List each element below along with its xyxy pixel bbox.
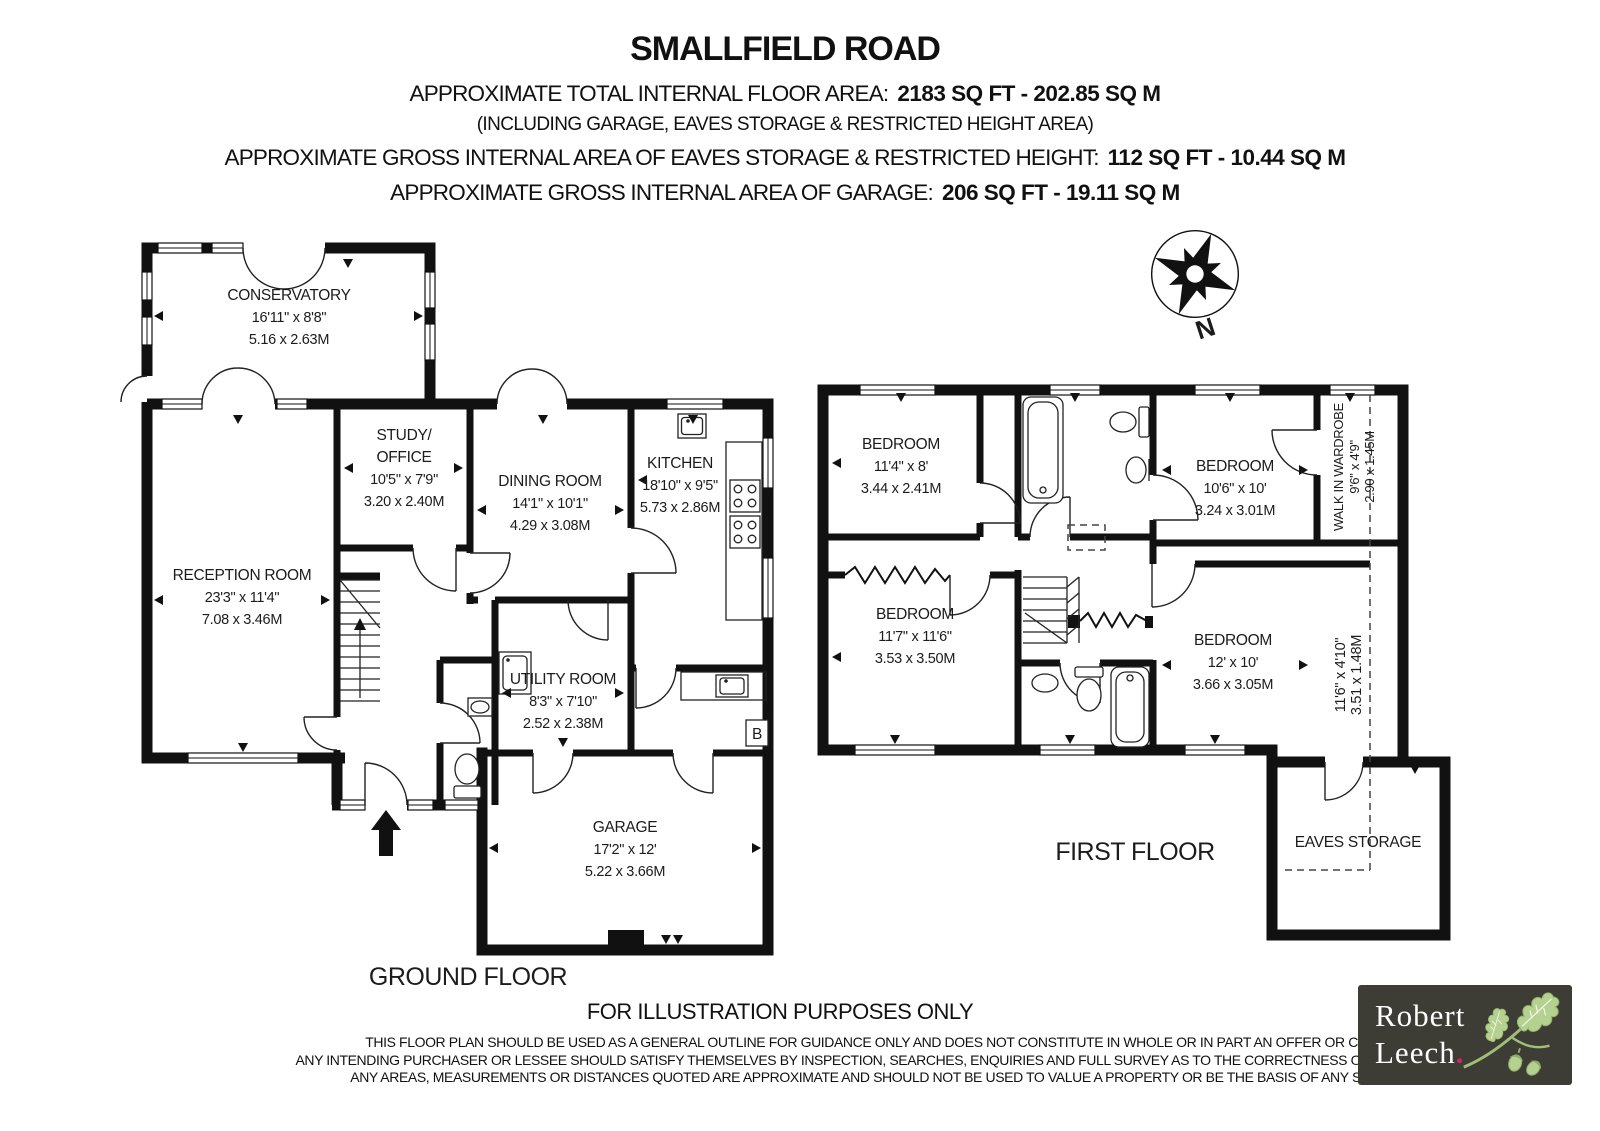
room-imperial: 23'3" x 11'4" bbox=[205, 590, 280, 606]
window bbox=[425, 324, 435, 360]
garage-area-line: APPROXIMATE GROSS INTERNAL AREA OF GARAG… bbox=[0, 180, 1570, 206]
room-name: GARAGE bbox=[593, 819, 658, 836]
window bbox=[445, 800, 478, 810]
room-imperial: 14'1" x 10'1" bbox=[512, 496, 588, 512]
staircase-down bbox=[1023, 577, 1079, 643]
toilet-icon bbox=[1075, 667, 1103, 711]
eaves-area-value: 112 SQ FT - 10.44 SQ M bbox=[1108, 145, 1346, 170]
room-name: KITCHEN bbox=[647, 455, 713, 472]
ground-floor-label: GROUND FLOOR bbox=[369, 963, 567, 991]
room-metric: 7.08 x 3.46M bbox=[202, 612, 282, 628]
room-imperial: 10'6" x 10' bbox=[1203, 481, 1267, 497]
window bbox=[340, 800, 365, 810]
window bbox=[763, 438, 773, 488]
room-metric: 2.52 x 2.38M bbox=[523, 716, 603, 732]
ground-windows bbox=[142, 243, 773, 810]
ground-door-arcs bbox=[121, 248, 713, 805]
room-label-kitchen: KITCHEN 18'10" x 9'5" 5.73 x 2.86M bbox=[640, 455, 720, 516]
bath-icon bbox=[1023, 397, 1063, 503]
room-name: CONSERVATORY bbox=[227, 287, 350, 304]
window bbox=[763, 558, 773, 618]
room-imperial: 12' x 10' bbox=[1208, 655, 1259, 671]
room-imperial: 16'11" x 8'8" bbox=[252, 310, 327, 326]
window bbox=[425, 272, 435, 308]
room-imperial: 11'6" x 4'10" bbox=[1333, 638, 1349, 713]
agency-logo: Robert Leech. bbox=[1358, 985, 1572, 1085]
room-metric: 3.53 x 3.50M bbox=[875, 651, 955, 667]
north-label: N bbox=[1192, 311, 1219, 345]
room-imperial: 9'6" x 4'9" bbox=[1347, 440, 1362, 494]
floorplan-page: { "header": { "title": "SMALLFIELD ROAD"… bbox=[0, 0, 1600, 1131]
entrance-arrow-icon bbox=[371, 810, 401, 856]
room-imperial: 17'2" x 12' bbox=[593, 842, 657, 858]
room-label-bedroom-bottom-right: BEDROOM 12' x 10' 3.66 x 3.05M bbox=[1193, 632, 1273, 693]
first-floor-plan: BEDROOM 11'4" x 8' 3.44 x 2.41M BEDROOM … bbox=[805, 375, 1465, 975]
room-label-dining: DINING ROOM 14'1" x 10'1" 4.29 x 3.08M bbox=[498, 473, 601, 534]
agency-name-line2: Leech bbox=[1375, 1035, 1456, 1070]
room-name: BEDROOM bbox=[1196, 458, 1274, 475]
room-metric: 3.66 x 3.05M bbox=[1193, 677, 1273, 693]
room-metric: 3.44 x 2.41M bbox=[861, 481, 941, 497]
basin-icon bbox=[468, 698, 492, 716]
staircase-up bbox=[340, 580, 380, 701]
window bbox=[162, 399, 202, 409]
wardrobe-zigzag bbox=[845, 567, 950, 583]
title-block: SMALLFIELD ROAD APPROXIMATE TOTAL INTERN… bbox=[0, 30, 1570, 206]
boiler-badge: B bbox=[746, 720, 768, 746]
room-metric: 2.90 x 1.45M bbox=[1362, 431, 1377, 503]
illustration-note: FOR ILLUSTRATION PURPOSES ONLY bbox=[0, 999, 1560, 1025]
room-label-restricted-height: 11'6" x 4'10" 3.51 x 1.48M bbox=[1333, 635, 1365, 715]
room-label-bedroom-top-right: BEDROOM 10'6" x 10' 3.24 x 3.01M bbox=[1195, 458, 1275, 519]
first-floor-label: FIRST FLOOR bbox=[1055, 838, 1214, 866]
room-name: RECEPTION ROOM bbox=[173, 567, 312, 584]
window bbox=[277, 399, 307, 409]
oak-leaves-icon bbox=[1456, 987, 1568, 1081]
room-metric: 5.73 x 2.86M bbox=[640, 500, 720, 516]
room-name: UTILITY ROOM bbox=[510, 671, 616, 688]
total-area-value: 2183 SQ FT - 202.85 SQ M bbox=[897, 81, 1160, 106]
room-imperial: 11'7" x 11'6" bbox=[878, 629, 952, 645]
total-area-line: APPROXIMATE TOTAL INTERNAL FLOOR AREA:21… bbox=[0, 81, 1570, 107]
window bbox=[1040, 745, 1095, 755]
window bbox=[142, 317, 152, 345]
garage-area-value: 206 SQ FT - 19.11 SQ M bbox=[942, 180, 1180, 205]
toilet-icon bbox=[1110, 407, 1149, 437]
room-imperial: 18'10" x 9'5" bbox=[642, 478, 718, 494]
room-imperial: 11'4" x 8' bbox=[874, 459, 929, 475]
room-label-utility: UTILITY ROOM 8'3" x 7'10" 2.52 x 2.38M bbox=[510, 671, 616, 732]
boiler-label: B bbox=[752, 726, 762, 743]
room-metric: 3.51 x 1.48M bbox=[1349, 635, 1365, 715]
room-label-eaves-storage: EAVES STORAGE bbox=[1295, 834, 1421, 851]
room-label-reception: RECEPTION ROOM 23'3" x 11'4" 7.08 x 3.46… bbox=[173, 567, 312, 628]
lobby-counter bbox=[681, 672, 766, 700]
room-name: BEDROOM bbox=[1194, 632, 1272, 649]
window bbox=[212, 243, 243, 253]
garage-area-label: APPROXIMATE GROSS INTERNAL AREA OF GARAG… bbox=[390, 180, 933, 205]
room-name: DINING ROOM bbox=[498, 473, 601, 490]
room-name: BEDROOM bbox=[862, 436, 940, 453]
total-area-label: APPROXIMATE TOTAL INTERNAL FLOOR AREA: bbox=[409, 81, 888, 106]
room-label-conservatory: CONSERVATORY 16'11" x 8'8" 5.16 x 2.63M bbox=[227, 287, 350, 348]
window bbox=[158, 243, 202, 253]
compass-rose-icon: N bbox=[1130, 222, 1260, 352]
room-imperial: 8'3" x 7'10" bbox=[529, 694, 597, 710]
property-title: SMALLFIELD ROAD bbox=[0, 30, 1570, 69]
room-name: STUDY/ bbox=[376, 427, 432, 444]
acorn-icon bbox=[1506, 1046, 1527, 1073]
window bbox=[667, 399, 723, 409]
room-imperial: 10'5" x 7'9" bbox=[370, 472, 438, 488]
bath-icon bbox=[1111, 667, 1149, 747]
room-metric: 5.22 x 3.66M bbox=[585, 864, 665, 880]
toilet-icon bbox=[454, 754, 481, 798]
acorn-icon bbox=[1523, 1058, 1544, 1079]
eaves-area-label: APPROXIMATE GROSS INTERNAL AREA OF EAVES… bbox=[224, 145, 1098, 170]
agency-name: Robert Leech. bbox=[1375, 998, 1465, 1071]
room-name: OFFICE bbox=[376, 449, 431, 466]
including-note: (INCLUDING GARAGE, EAVES STORAGE & RESTR… bbox=[0, 114, 1570, 136]
eaves-area-line: APPROXIMATE GROSS INTERNAL AREA OF EAVES… bbox=[0, 145, 1570, 171]
hob-icon bbox=[730, 480, 760, 548]
window bbox=[142, 272, 152, 300]
window bbox=[408, 800, 433, 810]
window bbox=[855, 745, 935, 755]
room-label-bedroom-top-left: BEDROOM 11'4" x 8' 3.44 x 2.41M bbox=[861, 436, 941, 497]
room-metric: 4.29 x 3.08M bbox=[510, 518, 590, 534]
room-label-study: STUDY/ OFFICE 10'5" x 7'9" 3.20 x 2.40M bbox=[364, 427, 444, 510]
room-metric: 3.20 x 2.40M bbox=[364, 494, 444, 510]
window bbox=[188, 753, 298, 763]
basin-icon bbox=[1032, 674, 1058, 692]
window bbox=[1185, 745, 1245, 755]
room-name: WALK IN WARDROBE bbox=[1331, 402, 1346, 530]
room-name: BEDROOM bbox=[876, 606, 954, 623]
room-label-garage: GARAGE 17'2" x 12' 5.22 x 3.66M bbox=[585, 819, 665, 880]
agency-name-line1: Robert bbox=[1375, 998, 1465, 1033]
ground-floor-plan: B CONSERVATORY 16'11" x 8'8" 5.16 x 2.63… bbox=[118, 228, 788, 998]
landing-zigzag bbox=[1068, 613, 1153, 628]
room-metric: 3.24 x 3.01M bbox=[1195, 503, 1275, 519]
basin-icon bbox=[1126, 457, 1149, 483]
room-label-bedroom-bottom-left: BEDROOM 11'7" x 11'6" 3.53 x 3.50M bbox=[875, 606, 955, 667]
room-metric: 5.16 x 2.63M bbox=[249, 332, 329, 348]
